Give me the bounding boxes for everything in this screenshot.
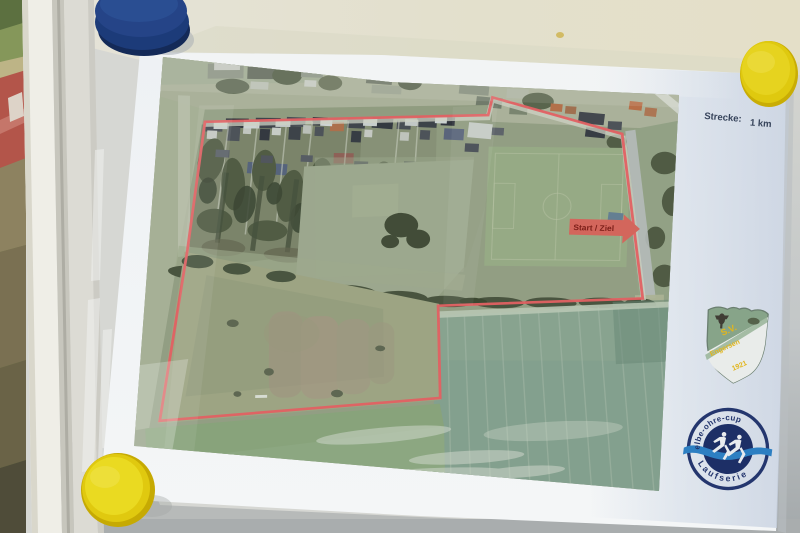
svg-text:1 km: 1 km — [749, 118, 771, 131]
